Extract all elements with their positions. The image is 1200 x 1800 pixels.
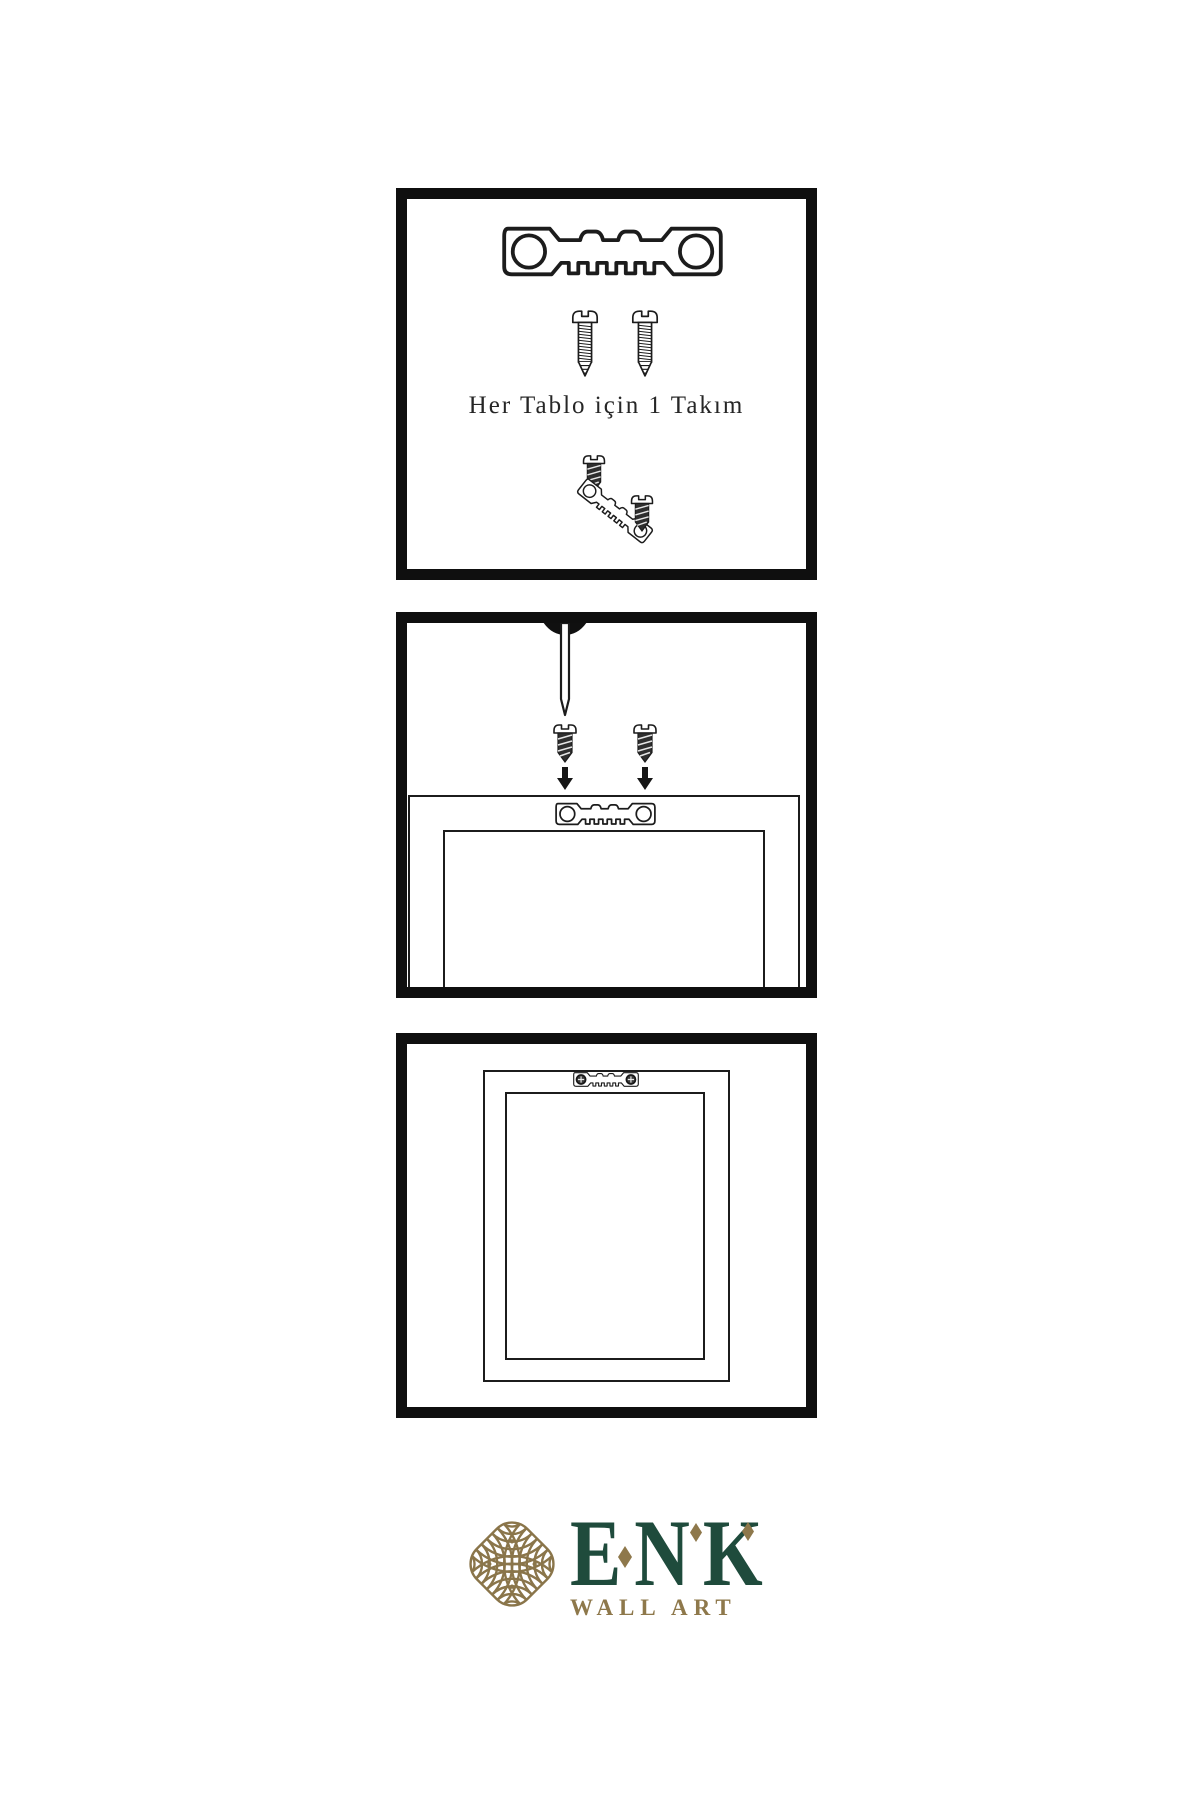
- nail-icon: [557, 623, 573, 718]
- panel-mounting-steps: [396, 612, 817, 998]
- knot-logo-icon: [458, 1502, 566, 1626]
- sawtooth-hanger-icon: [497, 223, 728, 280]
- arrow-down-icon: [557, 767, 573, 790]
- kit-caption: Her Tablo için 1 Takım: [407, 391, 806, 421]
- brand-name: ENK: [570, 1506, 776, 1601]
- screw-icon: [570, 307, 600, 381]
- screw-icon: [630, 307, 660, 381]
- brand-subtitle: WALL ART: [570, 1595, 737, 1621]
- sawtooth-hanger-icon: [553, 801, 658, 827]
- arrow-down-icon: [637, 767, 653, 790]
- panel-hardware-kit: Her Tablo için 1 Takım: [396, 188, 817, 580]
- instruction-sheet: Her Tablo için 1 Takım ENK WALL ART: [0, 0, 1200, 1800]
- dark-screw-icon: [552, 722, 578, 764]
- sawtooth-hanger-mounted-icon: [572, 1071, 640, 1088]
- dark-screw-icon: [632, 722, 658, 764]
- dark-screw-icon: [629, 493, 655, 533]
- frame-back-inner: [505, 1092, 705, 1360]
- panel-mounted-frame: [396, 1033, 817, 1418]
- frame-back-inner: [443, 830, 765, 987]
- kit-assembly-group: [575, 449, 671, 557]
